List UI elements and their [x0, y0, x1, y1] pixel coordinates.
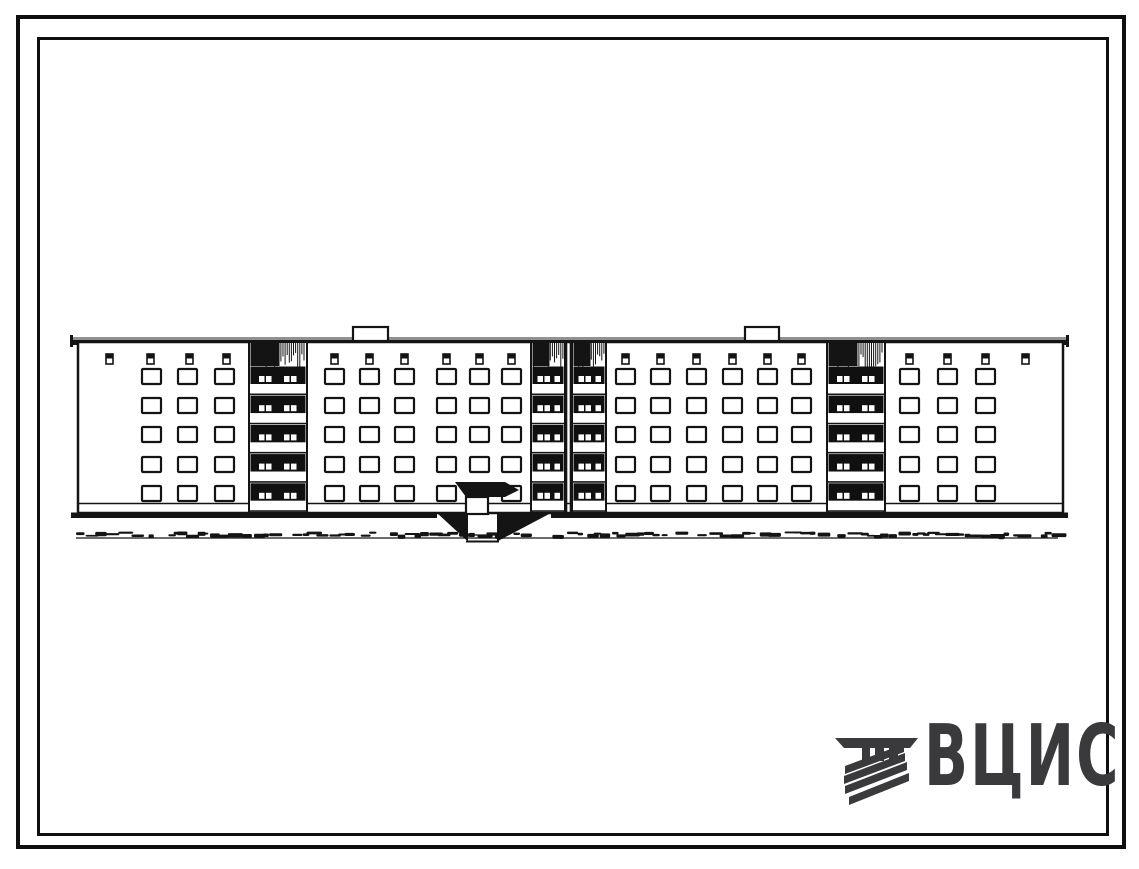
vcis-logo: ВЦИС: [832, 727, 1139, 806]
vcis-emblem-icon: [832, 727, 918, 806]
scanned-drawing-page: ВЦИС: [0, 0, 1139, 869]
vcis-logo-text: ВЦИС: [924, 714, 1121, 799]
